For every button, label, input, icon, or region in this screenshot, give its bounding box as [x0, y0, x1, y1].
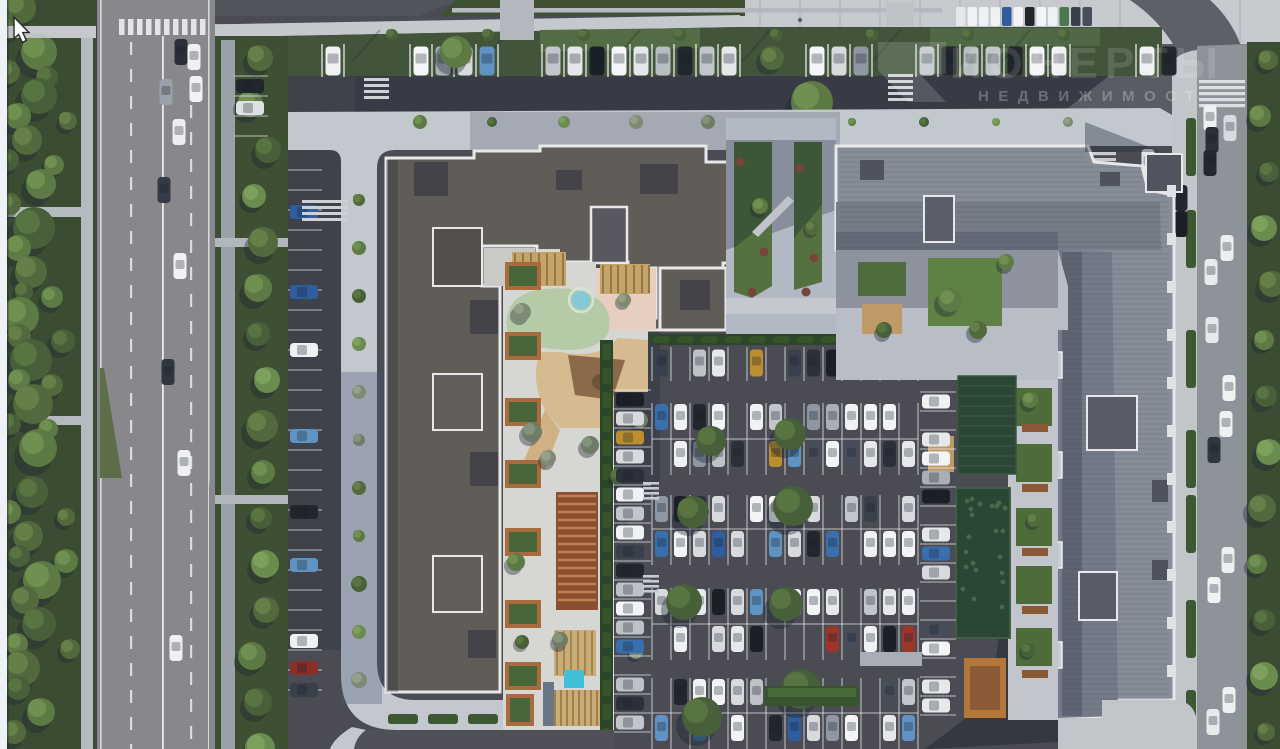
svg-text:ИОНЕРТЫ: ИОНЕРТЫ — [950, 39, 1225, 88]
svg-text:НЕДВИЖИМОСТ: НЕДВИЖИМОСТ — [978, 88, 1204, 105]
